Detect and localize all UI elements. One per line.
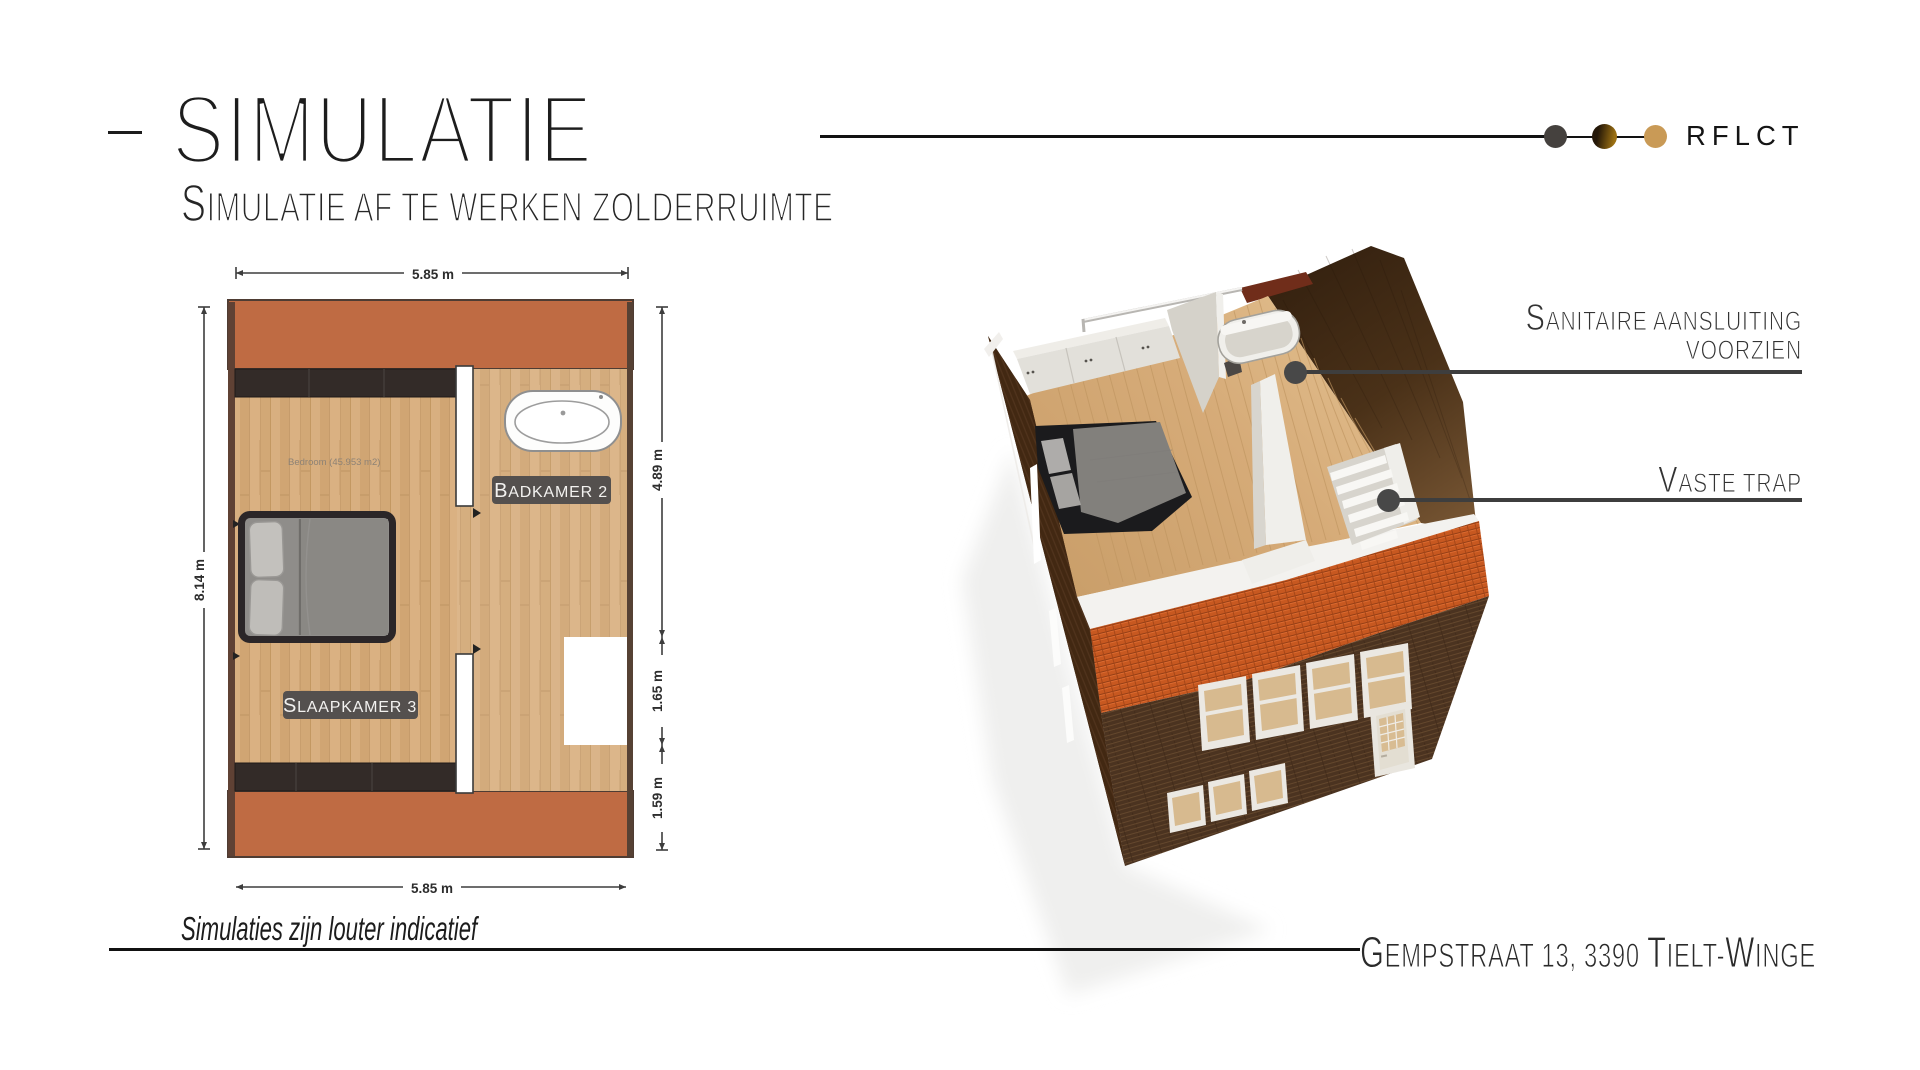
svg-text:4.89 m: 4.89 m — [650, 449, 665, 491]
svg-text:5.85 m: 5.85 m — [411, 881, 453, 896]
svg-text:8.14 m: 8.14 m — [192, 559, 207, 601]
svg-text:1.59 m: 1.59 m — [650, 777, 665, 819]
svg-text:5.85 m: 5.85 m — [412, 267, 454, 282]
svg-text:1.65 m: 1.65 m — [650, 670, 665, 712]
svg-text:Bedroom (45.953 m2): Bedroom (45.953 m2) — [288, 457, 380, 468]
svg-text:BADKAMER 2: BADKAMER 2 — [494, 480, 608, 502]
svg-text:SLAAPKAMER 3: SLAAPKAMER 3 — [283, 695, 417, 717]
